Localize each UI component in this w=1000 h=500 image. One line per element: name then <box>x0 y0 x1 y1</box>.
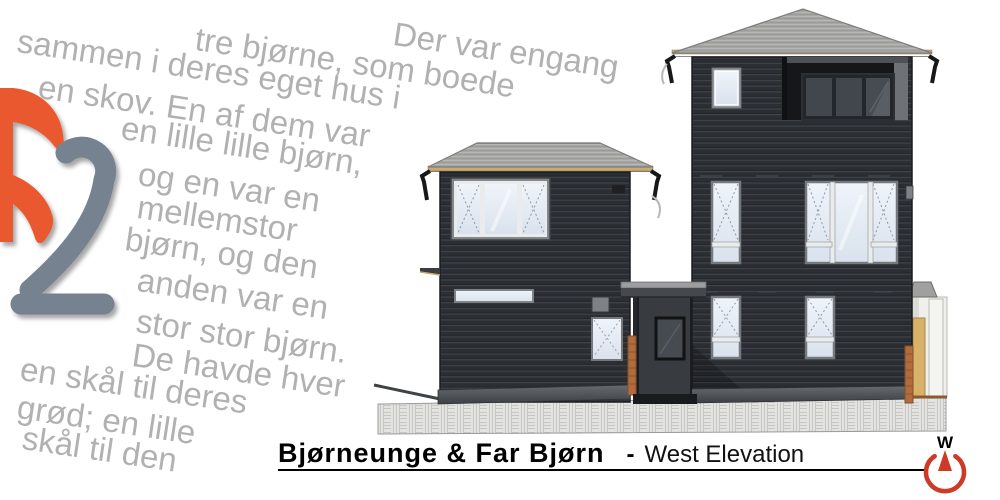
gutter-hook-right <box>651 171 659 200</box>
window-top-left <box>712 68 741 108</box>
tall-building <box>662 9 937 403</box>
drawing-sheet: Der var engang tre bjørne, som boede sam… <box>0 0 1000 500</box>
window-mid-composite <box>806 182 897 263</box>
light-fixture <box>592 297 609 312</box>
window-ground-left <box>712 297 740 358</box>
cedar-post <box>628 336 636 395</box>
window-mid-left <box>712 182 740 263</box>
window-strip <box>455 290 533 302</box>
title-rule <box>278 469 924 471</box>
window-lower <box>592 318 622 360</box>
cedar-trim-right <box>905 346 913 403</box>
gutter-hook-right <box>929 56 937 83</box>
balcony-recess <box>782 57 908 120</box>
utility-box <box>906 186 913 199</box>
vent <box>612 185 625 193</box>
compass-needle-icon <box>938 450 952 471</box>
compass-west: W <box>919 430 973 498</box>
title-separator: - <box>627 441 635 469</box>
gutter-hook-left <box>667 56 675 83</box>
small-building <box>420 143 660 404</box>
balcony-window <box>802 74 894 120</box>
title-block: Bjørneunge & Far Bjørn - West Elevation <box>278 438 938 472</box>
window-upper <box>451 178 550 240</box>
b2-logo <box>0 80 130 330</box>
threshold <box>633 394 697 404</box>
view-label: West Elevation <box>645 441 805 469</box>
gutter-hook-left <box>422 171 430 200</box>
project-title: Bjørneunge & Far Bjørn <box>278 438 605 469</box>
grade-line <box>374 385 440 399</box>
rear-porch <box>908 282 947 397</box>
logo-letter-b <box>0 88 64 243</box>
window-ground-right <box>806 297 834 358</box>
entry-door <box>638 296 691 400</box>
entry-canopy <box>621 282 706 297</box>
compass-letter: W <box>937 433 954 452</box>
